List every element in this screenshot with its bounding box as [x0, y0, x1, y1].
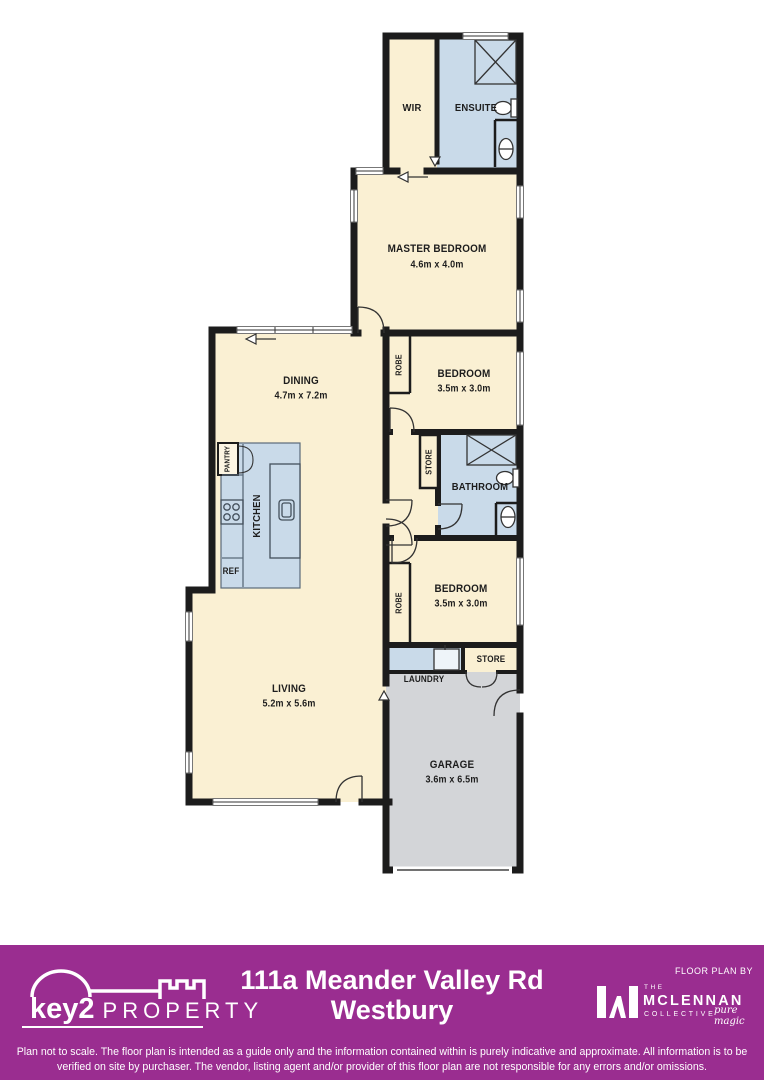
provider-tagline: pure magic — [714, 1005, 764, 1027]
property-address: 111a Meander Valley Rd Westbury — [232, 965, 552, 1025]
floor-plan-by-label: FLOOR PLAN BY — [675, 966, 753, 976]
floor-plan: WIR ENSUITE MASTER BEDROOM 4.6m x 4.0m D… — [0, 0, 764, 945]
room-label-bedroom-2: BEDROOM — [435, 583, 488, 595]
brand-underline — [22, 1026, 203, 1028]
floor-plan-page: WIR ENSUITE MASTER BEDROOM 4.6m x 4.0m D… — [0, 0, 764, 1080]
provider-the-label: THE — [644, 984, 665, 991]
brand-name-bold: key2 — [30, 993, 95, 1025]
address-line-2: Westbury — [232, 995, 552, 1025]
room-label-living: LIVING — [272, 683, 306, 695]
brand-wordmark: key2PROPERTY — [30, 993, 263, 1026]
room-label-garage: GARAGE — [430, 759, 475, 771]
address-line-1: 111a Meander Valley Rd — [232, 965, 552, 995]
room-label-ensuite: ENSUITE — [455, 102, 497, 114]
room-label-wir: WIR — [403, 102, 422, 114]
footer-banner: key2PROPERTY 111a Meander Valley Rd West… — [0, 945, 764, 1080]
room-label-bathroom: BATHROOM — [452, 481, 508, 493]
room-label-laundry: LAUNDRY — [404, 674, 445, 684]
mclennan-m-icon — [597, 985, 639, 1019]
room-label-bedroom-1: BEDROOM — [438, 368, 491, 380]
room-label-dining: DINING — [283, 375, 319, 387]
room-dims-bedroom-2: 3.5m x 3.0m — [434, 599, 487, 610]
room-label-kitchen: KITCHEN — [251, 494, 263, 537]
room-label-pantry: PANTRY — [225, 446, 232, 472]
room-dims-garage: 3.6m x 6.5m — [425, 775, 478, 786]
room-label-robe-2: ROBE — [395, 592, 404, 614]
disclaimer-text: Plan not to scale. The floor plan is int… — [12, 1045, 752, 1074]
room-dims-master-bedroom: 4.6m x 4.0m — [410, 260, 463, 271]
room-label-ref: REF — [223, 566, 240, 576]
room-dims-living: 5.2m x 5.6m — [262, 699, 315, 710]
floor-plan-geometry — [0, 0, 764, 945]
room-label-store-1: STORE — [425, 449, 434, 475]
room-dims-dining: 4.7m x 7.2m — [274, 391, 327, 402]
room-label-store-2: STORE — [477, 654, 506, 664]
provider-collective-label: COLLECTIVE — [644, 1011, 716, 1018]
room-label-robe-1: ROBE — [395, 354, 404, 376]
room-label-master-bedroom: MASTER BEDROOM — [388, 243, 487, 255]
room-dims-bedroom-1: 3.5m x 3.0m — [437, 384, 490, 395]
